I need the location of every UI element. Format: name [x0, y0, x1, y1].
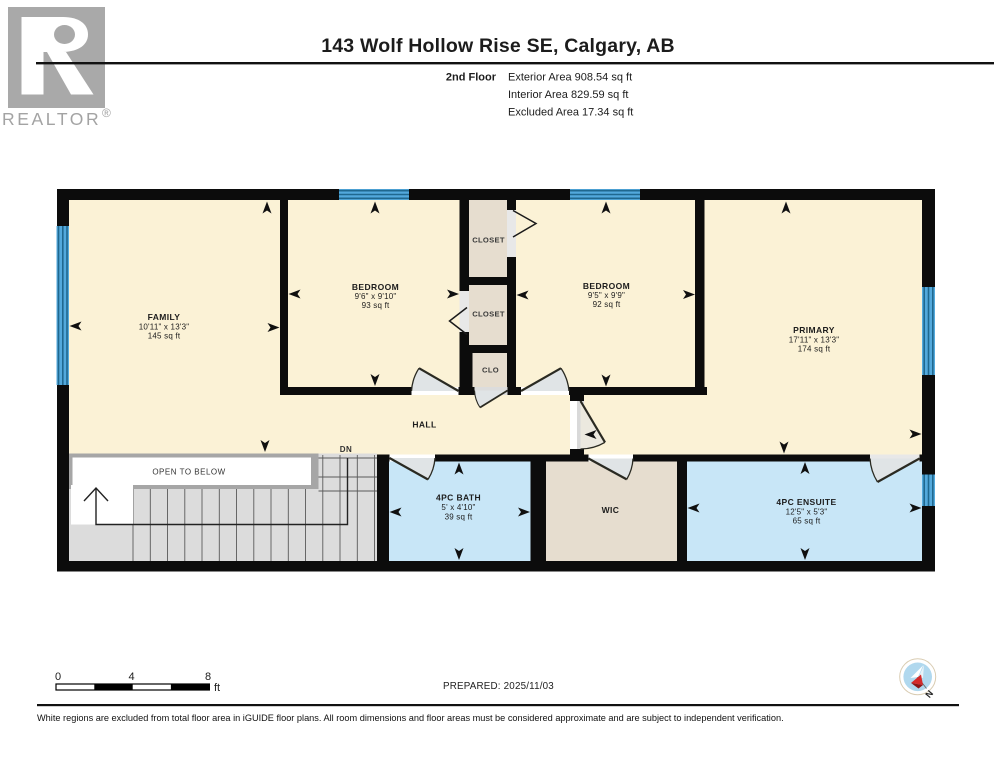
svg-text:0: 0 [55, 671, 61, 683]
svg-text:REALTOR: REALTOR [2, 109, 101, 129]
svg-text:2nd Floor: 2nd Floor [446, 72, 497, 84]
svg-text:4PC BATH: 4PC BATH [436, 493, 481, 503]
svg-text:Excluded Area 17.34 sq ft: Excluded Area 17.34 sq ft [508, 107, 633, 119]
svg-text:WIC: WIC [602, 505, 620, 515]
svg-text:5' x 4'10": 5' x 4'10" [441, 503, 475, 512]
svg-text:PREPARED: 2025/11/03: PREPARED: 2025/11/03 [443, 681, 554, 692]
svg-text:CLOSET: CLOSET [472, 236, 505, 245]
svg-text:17'11" x 13'3": 17'11" x 13'3" [789, 336, 840, 345]
svg-text:8: 8 [205, 671, 211, 683]
svg-text:OPEN TO BELOW: OPEN TO BELOW [152, 468, 225, 477]
svg-text:Interior Area 829.59 sq ft: Interior Area 829.59 sq ft [508, 89, 628, 101]
svg-text:93 sq ft: 93 sq ft [362, 301, 390, 310]
svg-text:®: ® [102, 106, 111, 120]
svg-text:10'11" x 13'3": 10'11" x 13'3" [139, 323, 190, 332]
svg-text:145 sq ft: 145 sq ft [148, 332, 181, 341]
svg-text:39 sq ft: 39 sq ft [445, 513, 473, 522]
svg-text:BEDROOM: BEDROOM [352, 282, 399, 292]
svg-text:9'5" x 9'9": 9'5" x 9'9" [588, 291, 625, 300]
svg-text:FAMILY: FAMILY [148, 312, 181, 322]
svg-text:12'5" x 5'3": 12'5" x 5'3" [786, 508, 828, 517]
svg-text:92 sq ft: 92 sq ft [593, 300, 621, 309]
svg-text:CLO: CLO [482, 366, 499, 375]
svg-text:Exterior Area 908.54 sq ft: Exterior Area 908.54 sq ft [508, 72, 632, 84]
svg-text:4: 4 [128, 671, 134, 683]
svg-text:9'6" x 9'10": 9'6" x 9'10" [355, 292, 397, 301]
svg-text:DN: DN [340, 445, 353, 454]
svg-text:CLOSET: CLOSET [472, 310, 505, 319]
svg-text:4PC ENSUITE: 4PC ENSUITE [776, 497, 836, 507]
svg-text:BEDROOM: BEDROOM [583, 281, 630, 291]
svg-text:White regions are excluded fro: White regions are excluded from total fl… [37, 713, 784, 723]
svg-text:ft: ft [214, 682, 220, 694]
svg-text:HALL: HALL [412, 420, 436, 430]
svg-text:PRIMARY: PRIMARY [793, 325, 835, 335]
svg-text:143 Wolf Hollow Rise SE, Calga: 143 Wolf Hollow Rise SE, Calgary, AB [321, 35, 675, 57]
svg-text:174 sq ft: 174 sq ft [798, 345, 831, 354]
svg-text:65 sq ft: 65 sq ft [793, 517, 821, 526]
